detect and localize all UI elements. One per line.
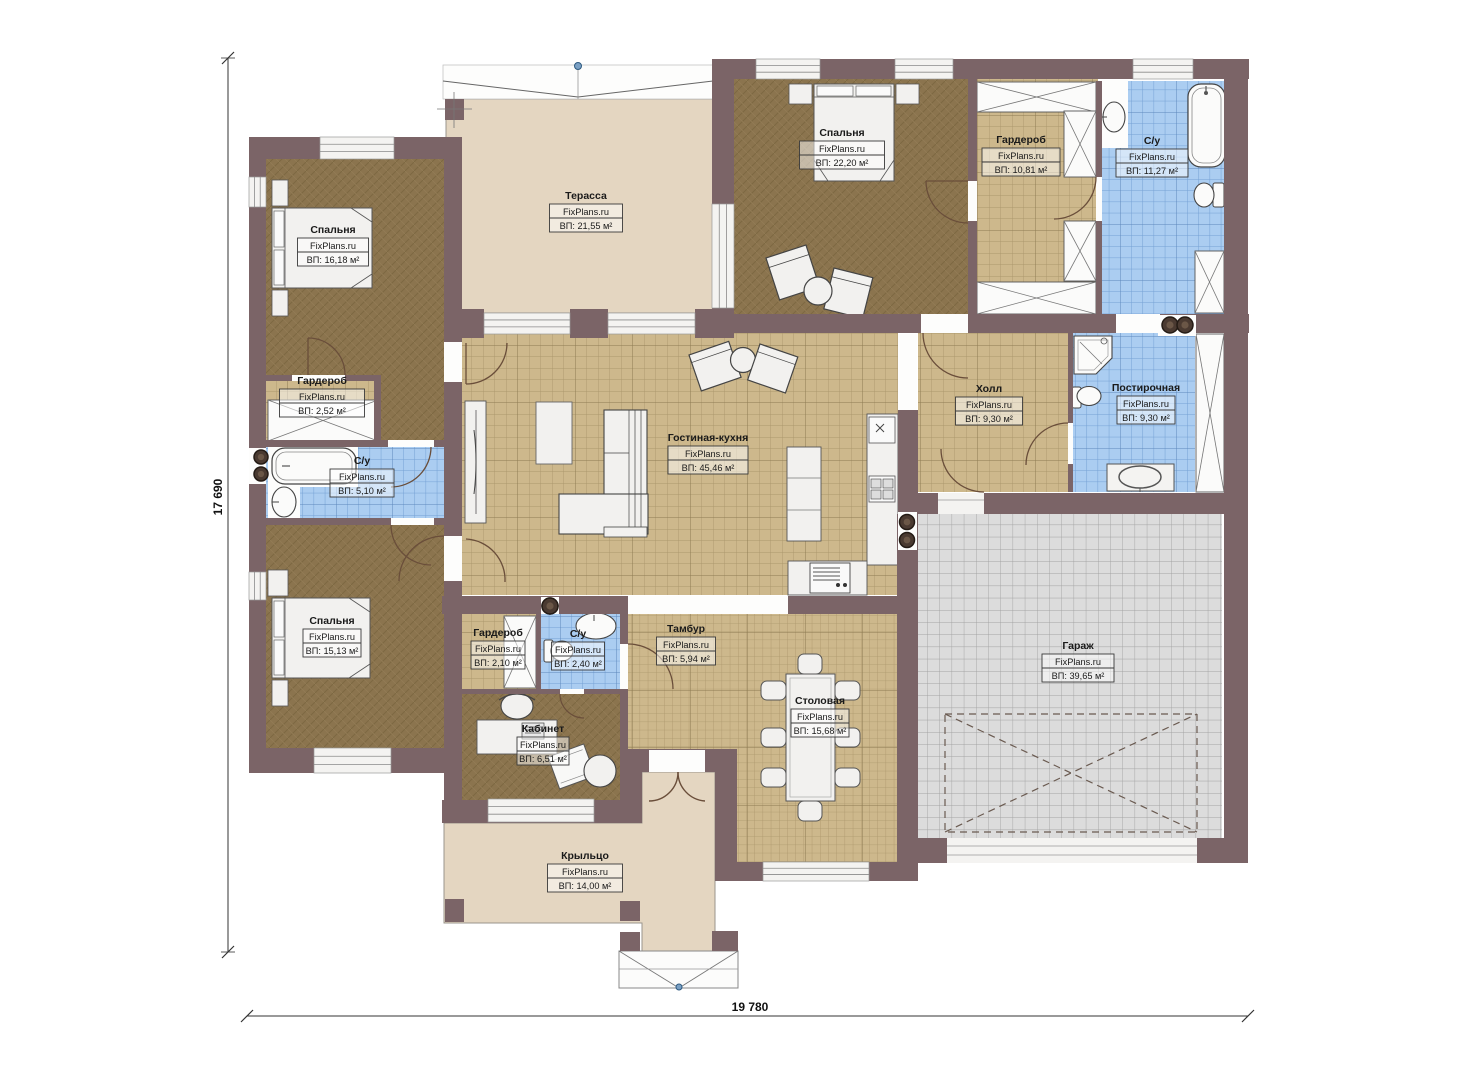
svg-text:FixPlans.ru: FixPlans.ru — [1129, 152, 1175, 162]
svg-text:Постирочная: Постирочная — [1112, 382, 1180, 394]
svg-text:ВП: 21,55 м²: ВП: 21,55 м² — [560, 221, 613, 231]
svg-text:ВП: 9,30 м²: ВП: 9,30 м² — [965, 414, 1013, 424]
svg-text:FixPlans.ru: FixPlans.ru — [563, 207, 609, 217]
svg-text:ВП: 22,20 м²: ВП: 22,20 м² — [816, 158, 869, 168]
svg-text:ВП: 39,65 м²: ВП: 39,65 м² — [1052, 671, 1105, 681]
svg-text:FixPlans.ru: FixPlans.ru — [1123, 399, 1169, 409]
svg-text:ВП: 16,18 м²: ВП: 16,18 м² — [307, 255, 360, 265]
svg-text:19 780: 19 780 — [732, 1000, 769, 1014]
svg-text:FixPlans.ru: FixPlans.ru — [520, 740, 566, 750]
svg-text:FixPlans.ru: FixPlans.ru — [562, 867, 608, 877]
svg-text:С/у: С/у — [1144, 135, 1161, 147]
svg-text:FixPlans.ru: FixPlans.ru — [555, 645, 601, 655]
svg-text:Столовая: Столовая — [795, 695, 845, 707]
svg-text:FixPlans.ru: FixPlans.ru — [475, 644, 521, 654]
svg-text:ВП: 45,46 м²: ВП: 45,46 м² — [682, 463, 735, 473]
svg-text:Гостиная-кухня: Гостиная-кухня — [668, 432, 748, 444]
svg-text:Спальня: Спальня — [819, 127, 864, 139]
svg-text:FixPlans.ru: FixPlans.ru — [310, 241, 356, 251]
svg-text:FixPlans.ru: FixPlans.ru — [966, 400, 1012, 410]
svg-text:FixPlans.ru: FixPlans.ru — [797, 712, 843, 722]
svg-text:FixPlans.ru: FixPlans.ru — [663, 640, 709, 650]
svg-text:ВП: 2,40 м²: ВП: 2,40 м² — [554, 659, 602, 669]
svg-text:Тамбур: Тамбур — [667, 623, 705, 635]
svg-text:ВП: 11,27 м²: ВП: 11,27 м² — [1126, 166, 1178, 176]
svg-text:Спальня: Спальня — [310, 224, 355, 236]
svg-text:ВП: 15,68 м²: ВП: 15,68 м² — [794, 726, 847, 736]
svg-text:FixPlans.ru: FixPlans.ru — [299, 392, 345, 402]
svg-text:17 690: 17 690 — [211, 478, 225, 515]
svg-text:Гараж: Гараж — [1062, 640, 1094, 652]
svg-text:С/у: С/у — [570, 628, 587, 640]
svg-text:Терасса: Терасса — [565, 190, 607, 202]
svg-text:Гардероб: Гардероб — [473, 627, 523, 639]
svg-text:FixPlans.ru: FixPlans.ru — [1055, 657, 1101, 667]
svg-text:Кабинет: Кабинет — [522, 723, 565, 735]
svg-text:С/у: С/у — [354, 455, 371, 467]
svg-text:FixPlans.ru: FixPlans.ru — [685, 449, 731, 459]
svg-text:FixPlans.ru: FixPlans.ru — [819, 144, 865, 154]
svg-text:ВП: 2,52 м²: ВП: 2,52 м² — [298, 406, 346, 416]
svg-text:ВП: 9,30 м²: ВП: 9,30 м² — [1122, 413, 1170, 423]
svg-text:ВП: 6,51 м²: ВП: 6,51 м² — [519, 754, 567, 764]
svg-text:Гардероб: Гардероб — [996, 134, 1046, 146]
svg-text:FixPlans.ru: FixPlans.ru — [998, 151, 1044, 161]
svg-text:ВП: 5,94 м²: ВП: 5,94 м² — [662, 654, 710, 664]
svg-text:FixPlans.ru: FixPlans.ru — [339, 472, 385, 482]
svg-text:Гардероб: Гардероб — [297, 375, 347, 387]
svg-text:ВП: 5,10 м²: ВП: 5,10 м² — [338, 486, 386, 496]
svg-text:ВП: 2,10 м²: ВП: 2,10 м² — [474, 658, 522, 668]
svg-text:FixPlans.ru: FixPlans.ru — [309, 632, 355, 642]
svg-text:Крыльцо: Крыльцо — [561, 850, 609, 862]
svg-text:ВП: 14,00 м²: ВП: 14,00 м² — [559, 881, 612, 891]
svg-text:Холл: Холл — [976, 383, 1002, 395]
svg-text:ВП: 10,81 м²: ВП: 10,81 м² — [995, 165, 1048, 175]
svg-text:ВП: 15,13 м²: ВП: 15,13 м² — [306, 646, 359, 656]
svg-text:Спальня: Спальня — [309, 615, 354, 627]
